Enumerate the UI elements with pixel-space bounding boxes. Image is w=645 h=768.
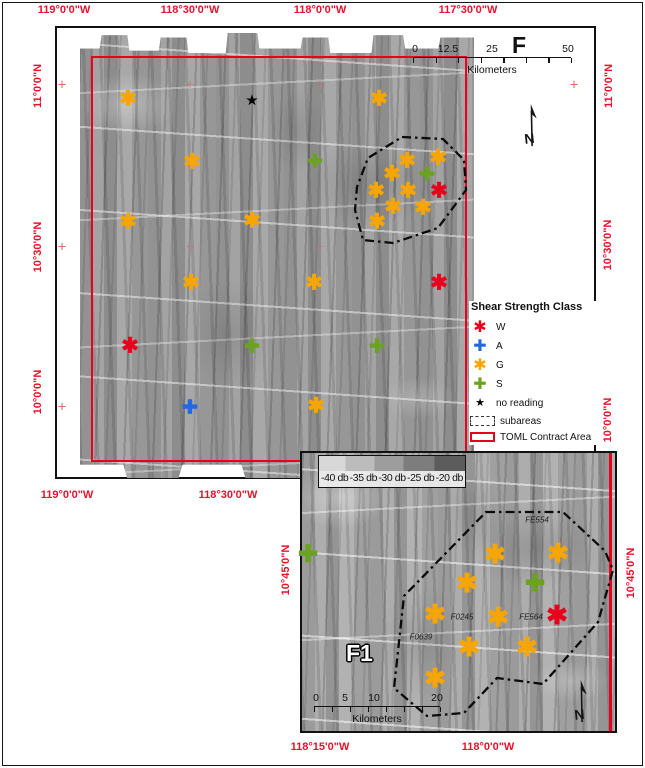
legend-item: ✚A [469, 337, 596, 356]
legend-items: ✱W✚A✱G✚S★no readingsubareasTOML Contract… [469, 318, 596, 445]
subarea-site-label: FE554 [525, 516, 549, 525]
shear-class-W-marker-icon: ✱ [430, 181, 448, 202]
backscatter-db-labels: -40 db-35 db-30 db-25 db-20 db [319, 471, 465, 486]
shear-class-G-marker-icon: ✱ [307, 396, 325, 417]
db-label: -25 db [407, 471, 434, 486]
scalebar-number: 12.5 [438, 43, 458, 55]
db-label: -35 db [350, 471, 377, 486]
north-arrow-icon: N [568, 677, 597, 727]
scalebar-number: 0 [412, 43, 418, 55]
scalebar-tick [350, 707, 351, 712]
scalebar-number: 10 [368, 692, 380, 704]
shear-class-G-marker-icon: ✱ [119, 89, 137, 110]
scalebar-tick [332, 707, 333, 712]
db-label: -30 db [378, 471, 405, 486]
scalebar-tick [314, 707, 315, 712]
legend-item: ✱W [469, 318, 596, 337]
legend-swatch-label: TOML Contract Area [500, 432, 591, 443]
coordinate-label: 10°0'0"N [32, 370, 44, 415]
shear-class-G-marker-icon: ✱ [368, 212, 386, 233]
north-arrow-icon: N [518, 101, 547, 151]
shear-class-S-marker-icon: ✚ [369, 338, 385, 357]
subareas-swatch [470, 416, 495, 426]
figure-label: F [512, 32, 526, 59]
legend: Shear Strength Class ✱W✚A✱G✚S★no reading… [469, 301, 596, 445]
scalebar-tick [404, 707, 405, 712]
coordinate-label: 11°0'0"N [32, 64, 44, 108]
coordinate-label: 10°30'0"N [32, 222, 44, 273]
shear-class-S-marker-icon: ✚ [298, 543, 318, 567]
scalebar-bar [314, 706, 440, 707]
legend-swatch-label: subareas [500, 416, 541, 427]
scalebar-tick [422, 707, 423, 712]
scalebar-tick [481, 58, 482, 63]
shear-class-W-marker-icon: ✱ [546, 602, 568, 628]
shear-class-G-marker-icon: ✱ [305, 273, 323, 294]
shear-class-G-marker-icon: ✱ [398, 151, 416, 172]
scalebar-tick [386, 707, 387, 712]
graticule-cross-icon: + [186, 240, 195, 255]
graticule-cross-icon: + [316, 240, 325, 255]
db-label: -40 db [321, 471, 348, 486]
coordinate-label: 118°30'0"W [161, 4, 220, 16]
coordinate-label: 10°30'0"N [602, 220, 614, 271]
shear-class-G-marker-icon: ✱ [370, 89, 388, 110]
shear-class-G-marker-icon: ✱ [183, 152, 201, 173]
shear-class-G-marker-icon: ✱ [458, 634, 480, 660]
coordinate-label: 10°45'0"N [625, 548, 637, 599]
shear-class-G-marker-icon: ✱ [384, 197, 402, 218]
shear-class-star-marker-icon: ★ [246, 94, 258, 107]
scalebar-bar [413, 57, 571, 58]
coordinate-label: 118°30'0"W [199, 489, 258, 501]
shear-class-G-marker-icon: ✱ [547, 540, 569, 566]
scalebar-tick [368, 707, 369, 712]
shear-class-G-marker-icon: ✱ [424, 601, 446, 627]
scalebar-number: 20 [431, 692, 443, 704]
backscatter-db-legend: -40 db-35 db-30 db-25 db-20 db [318, 455, 466, 488]
shear-class-G-marker-icon: ✱ [182, 273, 200, 294]
graticule-cross-icon: + [58, 78, 67, 93]
map-figure: F 012.52550Kilometers N Shear Strength C… [0, 0, 645, 768]
graticule-cross-icon: + [316, 78, 325, 93]
legend-item-label: no reading [496, 398, 543, 409]
shear-class-G-marker-icon: ✱ [414, 198, 432, 219]
scalebar-tick [548, 58, 549, 63]
coordinate-label: 118°15'0"W [291, 741, 350, 753]
legend-item-label: G [496, 360, 504, 371]
legend-title: Shear Strength Class [471, 301, 596, 313]
legend-A-marker-icon: ✚ [469, 339, 491, 355]
shear-class-S-marker-icon: ✚ [244, 338, 260, 357]
legend-swatch-item: TOML Contract Area [469, 429, 596, 445]
scalebar-number: 25 [486, 43, 498, 55]
graticule-cross-icon: + [570, 78, 579, 93]
legend-item: ★no reading [469, 394, 596, 413]
legend-swatch-item: subareas [469, 413, 596, 429]
legend-W-marker-icon: ✱ [469, 320, 491, 336]
shear-class-S-marker-icon: ✚ [307, 153, 323, 172]
legend-item-label: A [496, 341, 503, 352]
scalebar-tick [503, 58, 504, 63]
shear-class-G-marker-icon: ✱ [424, 665, 446, 691]
scalebar-tick [413, 58, 414, 63]
shear-class-G-marker-icon: ✱ [367, 181, 385, 202]
coordinate-label: 118°0'0"W [462, 741, 515, 753]
subarea-site-label: F0245 [451, 613, 474, 622]
scalebar-tick [571, 58, 572, 63]
legend-item: ✚S [469, 375, 596, 394]
svg-text:N: N [523, 130, 535, 147]
toml-boundary-inset [609, 453, 612, 731]
db-label: -20 db [436, 471, 463, 486]
toml-contract-area-outline [91, 56, 467, 462]
coordinate-label: 117°30'0"W [439, 4, 498, 16]
shear-class-W-marker-icon: ✱ [430, 273, 448, 294]
subarea-site-label: FE564 [519, 613, 543, 622]
shear-class-G-marker-icon: ✱ [119, 212, 137, 233]
scalebar-tick [436, 58, 437, 63]
graticule-cross-icon: + [58, 240, 67, 255]
shear-class-G-marker-icon: ✱ [516, 634, 538, 660]
coordinate-label: 10°0'0"N [602, 398, 614, 443]
shear-class-G-marker-icon: ✱ [456, 570, 478, 596]
backscatter-gradient [319, 456, 465, 471]
graticule-cross-icon: + [186, 78, 195, 93]
shear-class-G-marker-icon: ✱ [383, 164, 401, 185]
shear-class-G-marker-icon: ✱ [243, 211, 261, 232]
scalebar-tick [458, 58, 459, 63]
shear-class-G-marker-icon: ✱ [487, 604, 509, 630]
legend-item-label: S [496, 379, 503, 390]
legend-S-marker-icon: ✚ [469, 377, 491, 393]
shear-class-S-marker-icon: ✚ [525, 572, 545, 596]
legend-G-marker-icon: ✱ [469, 358, 491, 374]
coordinate-label: 119°0'0"W [38, 4, 91, 16]
shear-class-W-marker-icon: ✱ [121, 336, 139, 357]
legend-star-marker-icon: ★ [469, 398, 491, 409]
scalebar-tick [526, 58, 527, 63]
legend-item: ✱G [469, 356, 596, 375]
legend-item-label: W [496, 322, 505, 333]
coordinate-label: 11°0'0"N [603, 64, 615, 108]
coordinate-label: 10°45'0"N [280, 545, 292, 596]
scalebar-number: 50 [562, 43, 574, 55]
scalebar-unit: Kilometers [467, 64, 517, 76]
graticule-cross-icon: + [58, 400, 67, 415]
toml-swatch [470, 432, 495, 442]
subarea-site-label: F0639 [410, 633, 433, 642]
coordinate-label: 118°0'0"W [294, 4, 347, 16]
shear-class-A-marker-icon: ✚ [182, 399, 198, 418]
scalebar-number: 5 [342, 692, 348, 704]
scalebar-tick [440, 707, 441, 712]
scalebar-unit: Kilometers [352, 713, 402, 725]
shear-class-G-marker-icon: ✱ [484, 541, 506, 567]
scalebar-number: 0 [313, 692, 319, 704]
svg-text:N: N [573, 706, 585, 723]
coordinate-label: 119°0'0"W [41, 489, 94, 501]
inset-label: F1 [346, 640, 373, 667]
